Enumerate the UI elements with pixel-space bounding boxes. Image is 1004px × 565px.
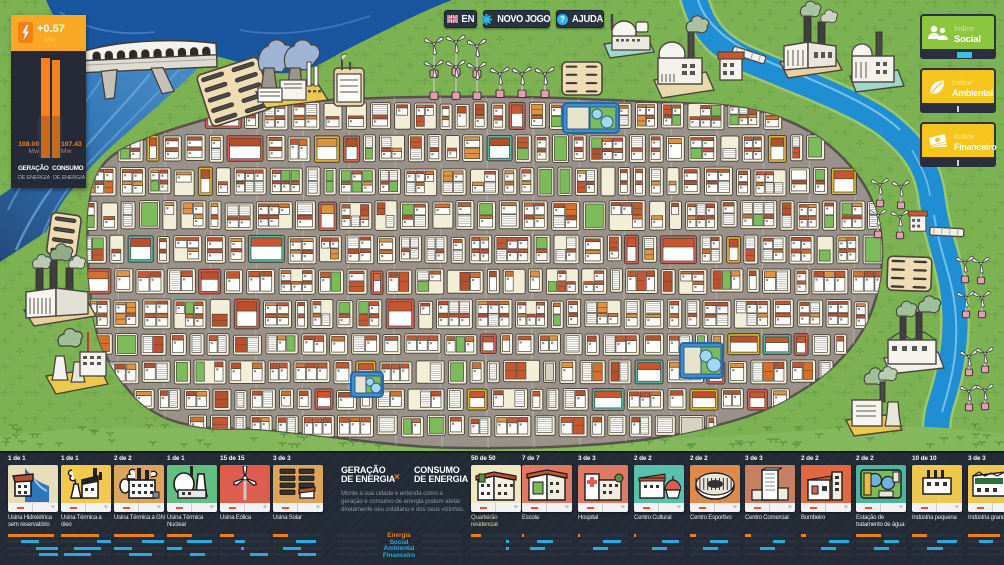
svg-text:?: ?: [560, 15, 565, 24]
